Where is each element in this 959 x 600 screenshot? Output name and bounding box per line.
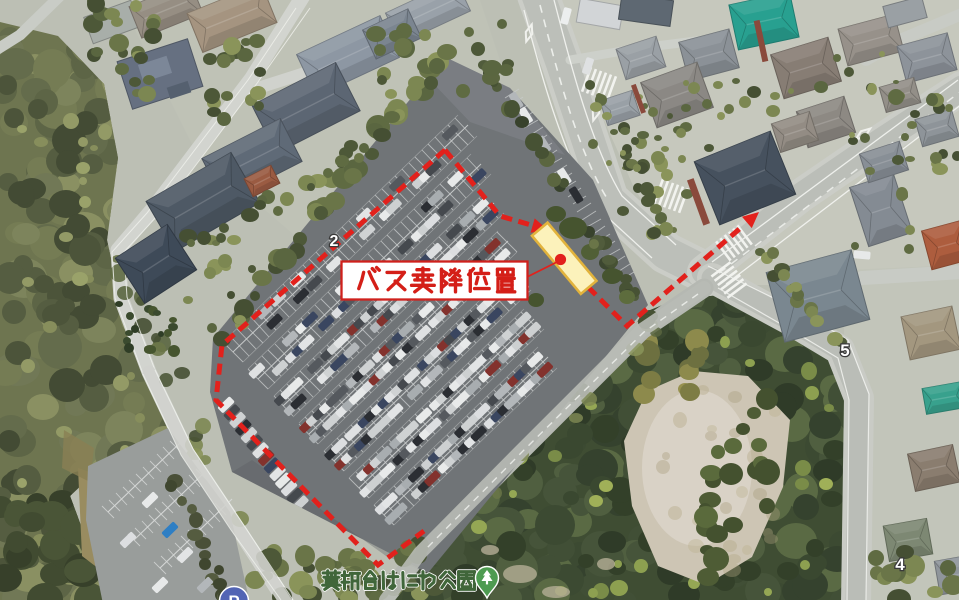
svg-text:P: P — [228, 592, 239, 600]
svg-text:4: 4 — [895, 555, 905, 574]
svg-text:5: 5 — [840, 341, 849, 360]
svg-text:2: 2 — [330, 233, 339, 250]
